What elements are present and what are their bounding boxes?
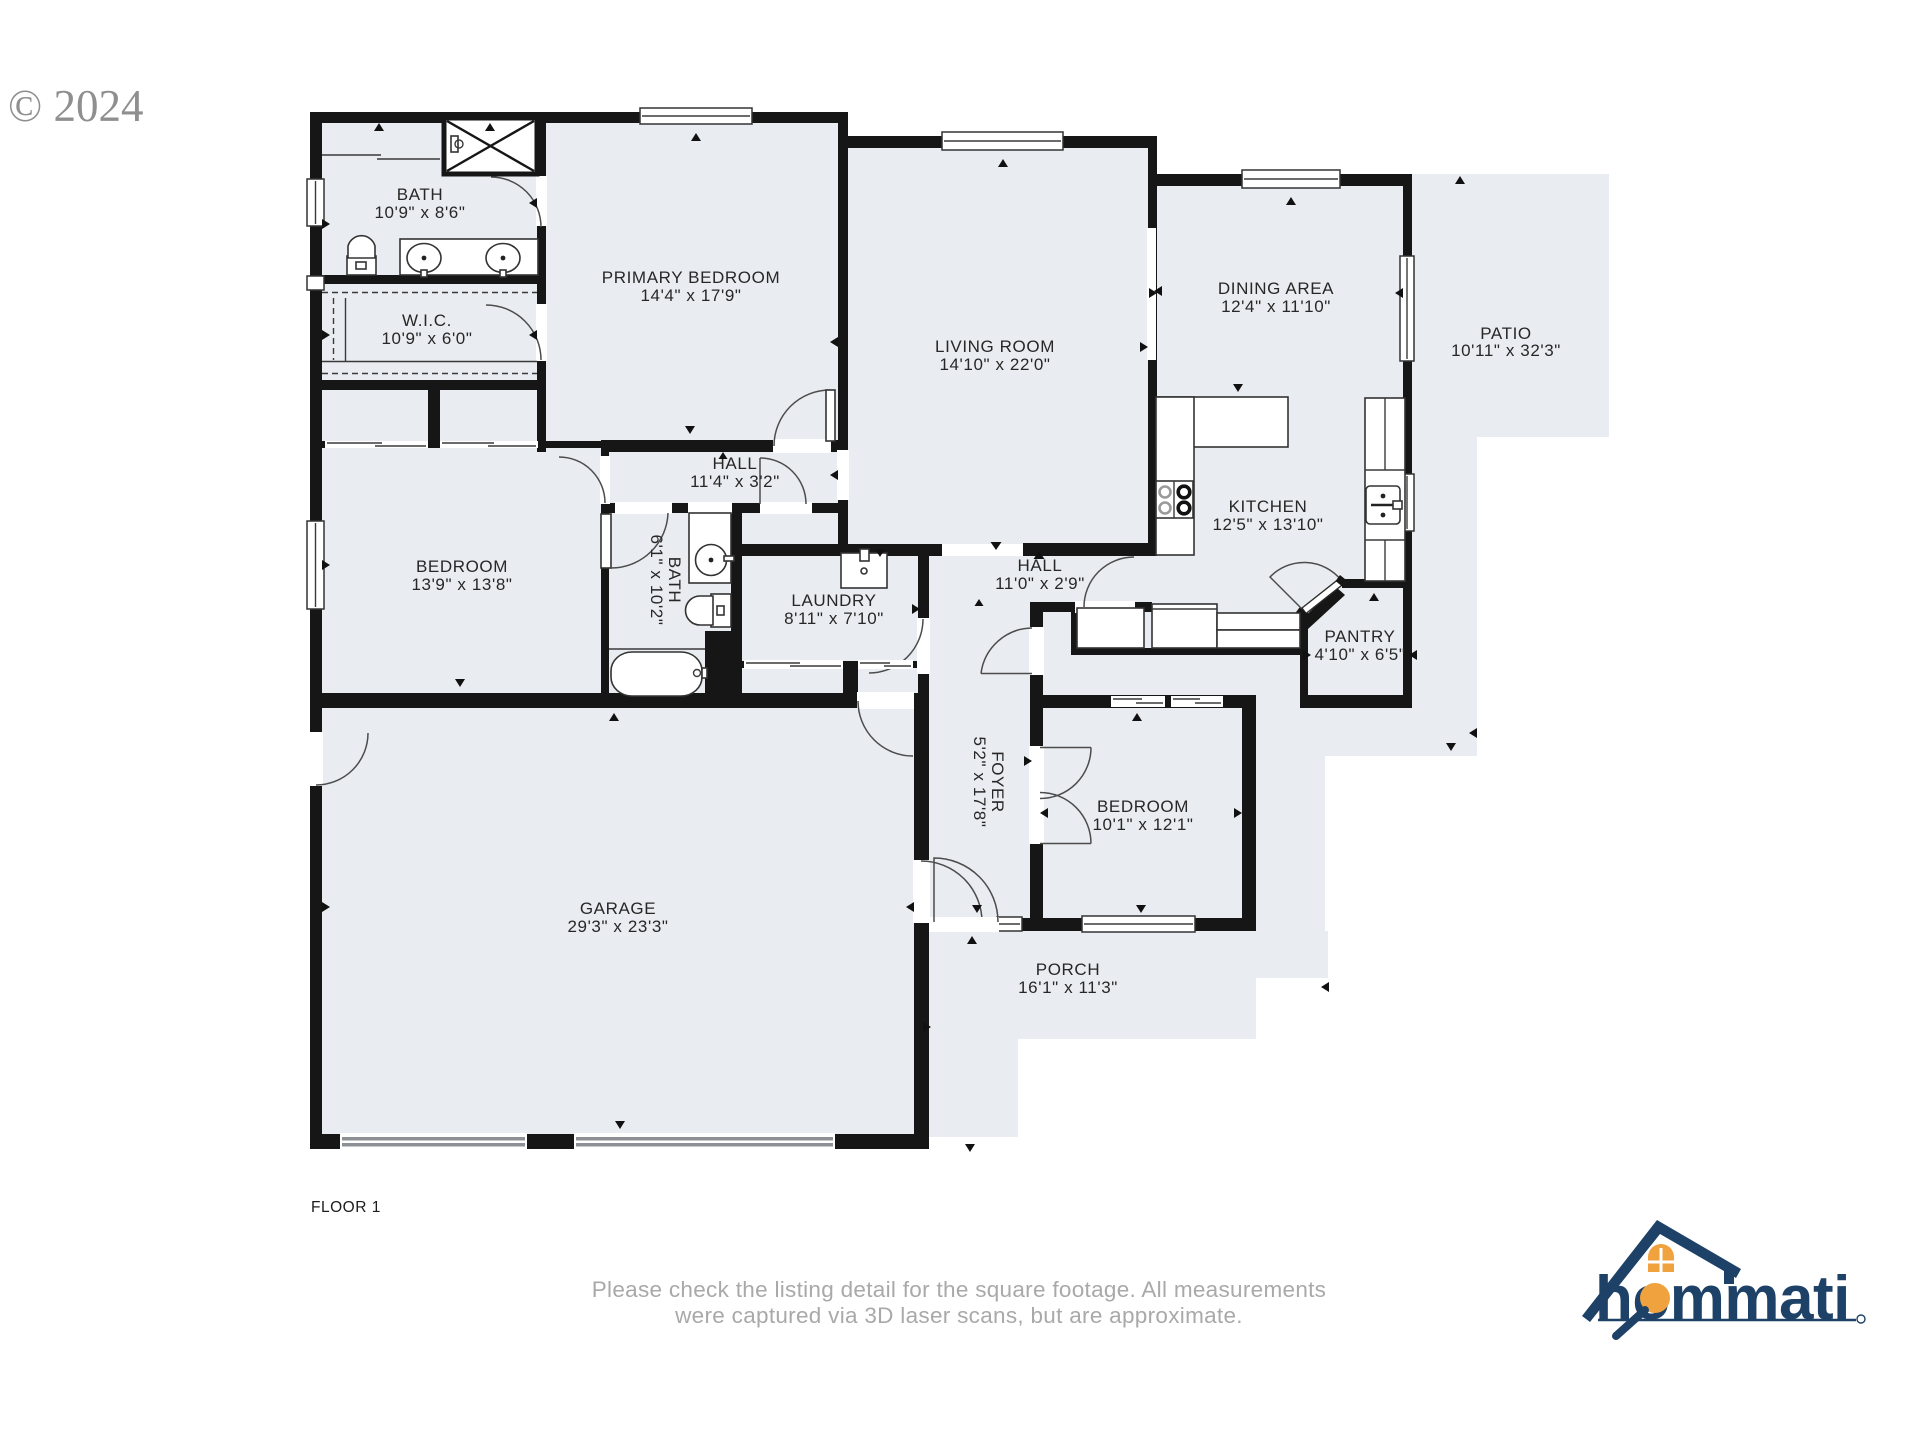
svg-text:10'9" x 8'6": 10'9" x 8'6" [375,203,466,222]
svg-text:16'1" x 11'3": 16'1" x 11'3" [1018,978,1118,997]
svg-text:HALL: HALL [713,454,758,473]
svg-text:LAUNDRY: LAUNDRY [791,591,876,610]
svg-text:11'4" x 3'2": 11'4" x 3'2" [690,472,780,491]
svg-text:PRIMARY BEDROOM: PRIMARY BEDROOM [602,268,780,287]
svg-text:10'9" x 6'0": 10'9" x 6'0" [382,329,473,348]
svg-text:10'11" x 32'3": 10'11" x 32'3" [1451,341,1561,360]
svg-text:11'0" x 2'9": 11'0" x 2'9" [995,574,1085,593]
svg-text:14'10" x 22'0": 14'10" x 22'0" [939,355,1050,374]
svg-text:W.I.C.: W.I.C. [402,311,452,330]
svg-text:BEDROOM: BEDROOM [1097,797,1189,816]
svg-text:BATH: BATH [665,557,684,603]
svg-text:KITCHEN: KITCHEN [1229,497,1308,516]
svg-text:GARAGE: GARAGE [580,899,656,918]
svg-text:14'4" x 17'9": 14'4" x 17'9" [640,286,741,305]
svg-text:© 2024: © 2024 [8,81,143,131]
svg-text:29'3" x 23'3": 29'3" x 23'3" [567,917,668,936]
svg-text:6'1" x 10'2": 6'1" x 10'2" [647,535,666,626]
svg-text:12'5" x 13'10": 12'5" x 13'10" [1212,515,1323,534]
svg-text:5'2" x 17'8": 5'2" x 17'8" [970,737,989,828]
svg-text:8'11" x 7'10": 8'11" x 7'10" [784,609,884,628]
svg-text:FLOOR 1: FLOOR 1 [311,1199,381,1216]
svg-text:PANTRY: PANTRY [1325,627,1396,646]
svg-text:PORCH: PORCH [1036,960,1100,979]
svg-text:were captured via 3D laser sca: were captured via 3D laser scans, but ar… [674,1303,1243,1328]
svg-text:Please check the listing detai: Please check the listing detail for the … [592,1277,1327,1302]
svg-text:DINING AREA: DINING AREA [1218,279,1334,298]
svg-text:10'1" x 12'1": 10'1" x 12'1" [1092,815,1193,834]
svg-text:BATH: BATH [397,185,443,204]
svg-text:FOYER: FOYER [988,751,1007,813]
svg-text:BEDROOM: BEDROOM [416,557,508,576]
svg-text:LIVING ROOM: LIVING ROOM [935,337,1055,356]
svg-text:4'10" x 6'5": 4'10" x 6'5" [1315,645,1406,664]
svg-text:13'9" x 13'8": 13'9" x 13'8" [411,575,512,594]
svg-text:12'4" x 11'10": 12'4" x 11'10" [1221,297,1331,316]
